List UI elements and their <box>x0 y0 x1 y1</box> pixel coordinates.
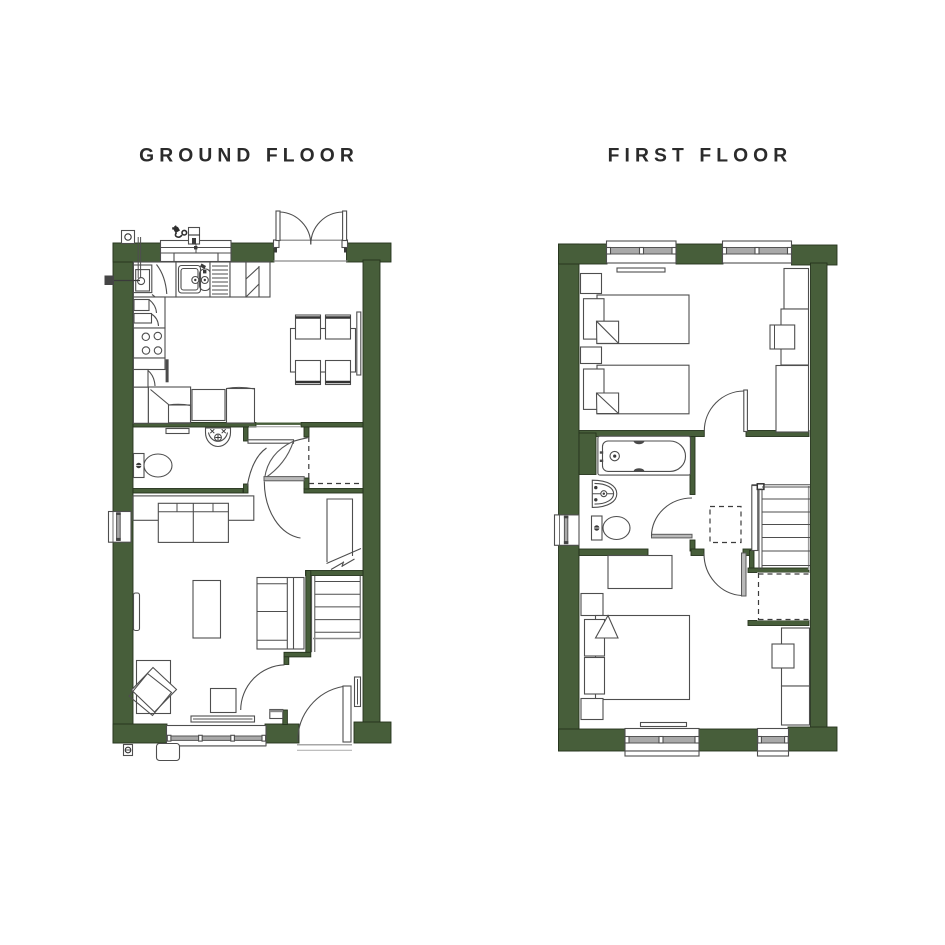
svg-text:GROUND FLOOR: GROUND FLOOR <box>139 146 359 167</box>
svg-text:FIRST FLOOR: FIRST FLOOR <box>608 146 793 167</box>
